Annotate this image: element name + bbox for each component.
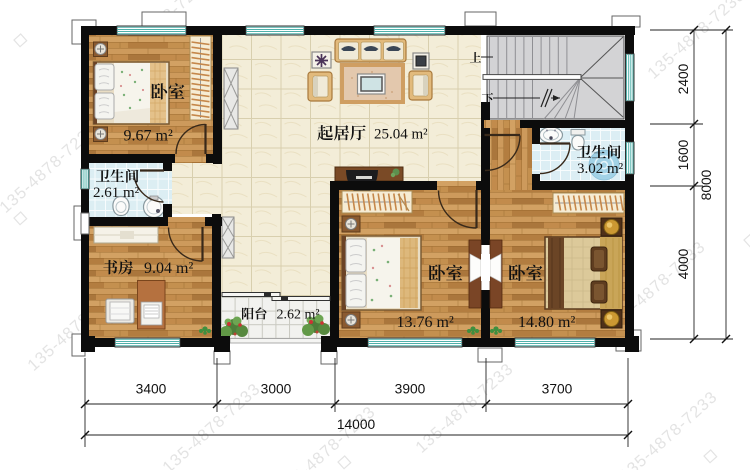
svg-text:2400: 2400 <box>676 63 691 94</box>
svg-text:2.62 m²: 2.62 m² <box>277 308 320 323</box>
svg-text:25.04 m²: 25.04 m² <box>374 127 428 143</box>
svg-text:3900: 3900 <box>395 382 426 397</box>
svg-text:14.80 m²: 14.80 m² <box>518 314 575 331</box>
svg-text:9.04 m²: 9.04 m² <box>144 260 193 277</box>
svg-text:4000: 4000 <box>676 248 691 279</box>
svg-text:9.67 m²: 9.67 m² <box>124 128 173 145</box>
svg-text:14000: 14000 <box>337 417 376 432</box>
svg-text:3.02 m²: 3.02 m² <box>577 161 624 177</box>
svg-text:3700: 3700 <box>542 382 573 397</box>
svg-text:3000: 3000 <box>261 382 292 397</box>
svg-text:13.76 m²: 13.76 m² <box>397 314 454 331</box>
svg-text:3400: 3400 <box>136 382 167 397</box>
svg-text:2.61 m²: 2.61 m² <box>93 185 140 201</box>
svg-text:1600: 1600 <box>676 139 691 170</box>
svg-text:8000: 8000 <box>699 169 714 200</box>
